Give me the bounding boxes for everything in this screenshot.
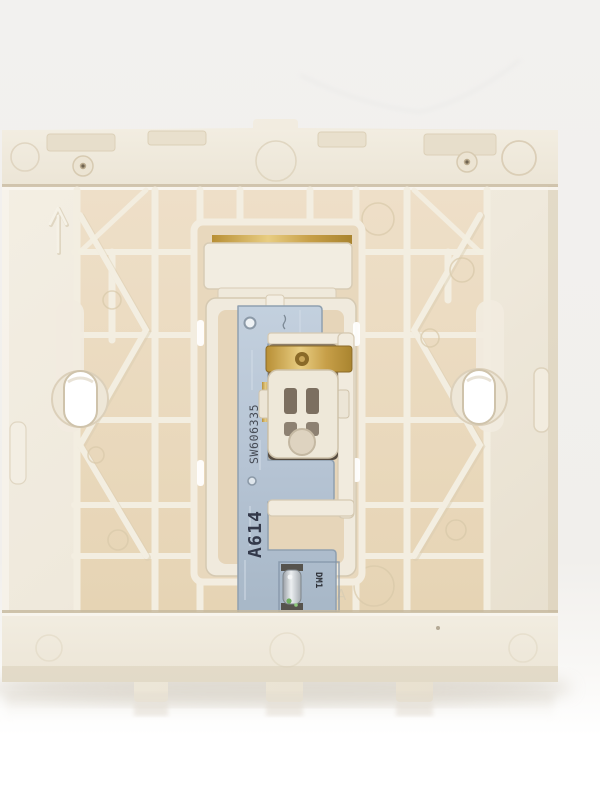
pcb-via [248,477,256,485]
left-edge-highlight [2,134,9,678]
rocker-slot [284,388,297,414]
rail-recess [148,131,206,145]
switch-mechanism: SW606335 A614 [194,222,362,616]
rocker-mechanism [259,370,349,458]
pcb-hole [245,318,256,329]
product-photo-switch-plate-back: A [0,0,600,800]
photo-canvas: A [0,0,600,800]
rocker-slot [306,388,319,414]
rail-lip-shadow [2,184,558,187]
pilot-boss-left [73,156,93,176]
mechanism-top-block [204,243,352,289]
top-rail [2,130,558,190]
rail-recess [47,134,115,151]
bottom-edge-shade [2,666,558,682]
rail-recess [424,134,496,155]
mold-letter: A [336,586,347,604]
flaw-dot [436,626,440,630]
led-glint-green [286,598,291,603]
led-designator-text: DM1 [313,572,323,588]
led-glint-green [294,603,298,607]
bottom-lip-shadow [2,610,558,613]
bottom-rail [2,610,558,682]
rail-recess [318,132,366,147]
rail-lip-highlight [2,187,558,190]
pcb-model-text: A614 [245,510,266,558]
bottom-lip-highlight [2,613,558,616]
edge-slot-left [10,422,26,484]
surface-reflection [6,694,554,724]
switch-plate-back: A [2,119,558,702]
pilot-boss-right [457,152,477,172]
led-glint [288,575,293,580]
rocker-pivot-recess [289,429,315,455]
edge-slot-right [534,368,549,432]
